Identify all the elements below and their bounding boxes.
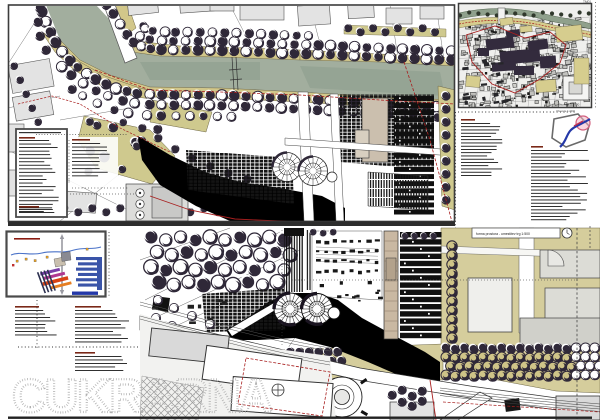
svg-text:CUKRARNA: CUKRARNA [12, 369, 272, 420]
svg-text:TM01: TM01 [583, 0, 591, 4]
svg-text:Situacija 1:2000: Situacija 1:2000 [558, 103, 580, 107]
svg-text:forma prostora - umestitev trg: forma prostora - umestitev trg 1:500 [476, 232, 530, 236]
svg-text:Obmocje 1:2000: Obmocje 1:2000 [556, 109, 576, 113]
